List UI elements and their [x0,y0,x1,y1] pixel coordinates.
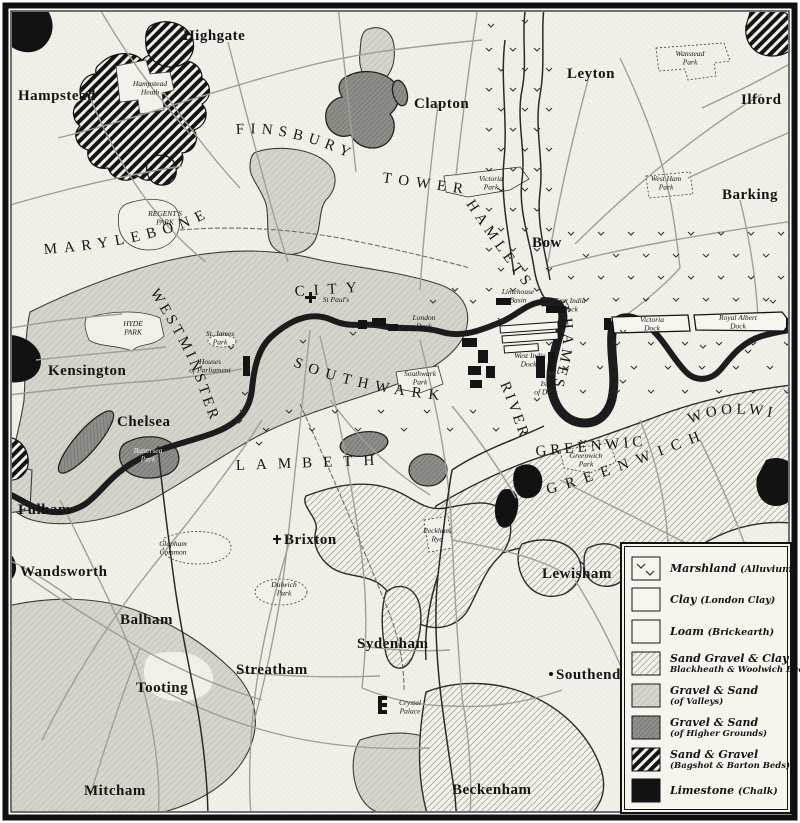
legend-swatch-clay [631,587,661,612]
map-page: MARYLEBONEFINSBURYTOWERHAMLETSWESTMINSTE… [0,0,800,823]
svg-text:PARK: PARK [123,328,143,337]
label-town-fulham: Fulham [18,502,71,518]
legend-label: Gravel & Sand (of Higher Grounds) [670,716,767,739]
svg-text:Heath: Heath [140,88,160,97]
svg-text:Park: Park [483,183,499,192]
legend-item-limestone: Limestone (Chalk) [631,777,783,805]
svg-text:Common: Common [159,548,186,557]
legend-swatch-marsh [631,556,661,581]
svg-text:Dock: Dock [729,322,746,331]
legend-rows: Marshland (Alluvium)Clay (London Clay)Lo… [624,546,788,810]
svg-text:Palace: Palace [399,707,421,716]
label-town-wandsworth: Wandsworth [20,564,108,580]
label-town-hampstead: Hampstead [18,88,96,104]
label-town-barking: Barking [722,187,778,203]
label-town-highgate: Highgate [183,28,245,44]
label-town-sydenham: Sydenham [357,636,429,652]
svg-text:Park: Park [658,183,674,192]
legend-label: Clay (London Clay) [670,593,775,606]
label-place-st-paul-s: St Paul's [323,295,349,304]
svg-text:of Parliament: of Parliament [189,366,231,375]
label-town-balham: Balham [120,612,173,628]
legend-label: Marshland (Alluvium) [670,562,797,575]
legend-item-gravel-sand: Gravel & Sand (of Valleys) [631,681,783,709]
legend-item-clay: Clay (London Clay) [631,586,783,614]
legend-item-sand-gravel-clay: Sand Gravel & Clay Blackheath & Woolwich… [631,650,783,678]
legend-item-sand-gravel: Sand & Gravel (Bagshot & Barton Beds) [631,745,783,773]
svg-text:Rye: Rye [430,535,443,544]
legend-item-gravel-sand: Gravel & Sand (of Higher Grounds) [631,713,783,741]
legend-label: Gravel & Sand (of Valleys) [670,684,758,707]
label-town-beckenham: Beckenham [452,782,532,798]
legend-swatch-gravel-higher [631,715,661,740]
label-town-tooting: Tooting [136,680,188,696]
svg-text:Park: Park [412,378,428,387]
legend-label: Sand & Gravel (Bagshot & Barton Beds) [670,748,790,771]
svg-text:Docks: Docks [520,360,540,369]
label-town-kensington: Kensington [48,363,127,379]
svg-text:Park: Park [682,58,698,67]
legend-item-loam: Loam (Brickearth) [631,618,783,646]
label-town-lewisham: Lewisham [542,566,612,582]
svg-text:Park: Park [578,460,594,469]
label-town-streatham: Streatham [236,662,308,678]
legend-swatch-hatch-dark [631,747,661,772]
legend-label: Sand Gravel & Clay Blackheath & Woolwich… [670,652,800,675]
legend-swatch-loam [631,619,661,644]
crystal-palace-icon [378,696,387,714]
legend-item-marshland: Marshland (Alluvium) [631,554,783,582]
map-legend: Marshland (Alluvium)Clay (London Clay)Lo… [620,542,792,814]
legend-label: Loam (Brickearth) [670,625,774,638]
svg-text:Park: Park [140,455,156,464]
legend-swatch-hatch-light [631,651,661,676]
svg-text:Park: Park [212,338,228,347]
label-town-mitcham: Mitcham [84,783,146,799]
legend-label: Limestone (Chalk) [670,784,778,797]
label-town-chelsea: Chelsea [117,414,171,430]
legend-swatch-black [631,778,661,803]
label-town-southend: Southend [556,667,621,683]
label-town-clapton: Clapton [414,96,469,112]
label-town-brixton: Brixton [284,532,337,548]
svg-text:Dock: Dock [415,322,432,331]
svg-text:Park: Park [276,589,292,598]
label-town-leyton: Leyton [567,66,615,82]
svg-text:Dock: Dock [561,305,578,314]
svg-text:Basin: Basin [509,296,526,305]
svg-text:of Dogs: of Dogs [534,388,558,397]
legend-swatch-gravel-valleys [631,683,661,708]
label-town-ilford: Ilford [741,92,782,108]
label-town-bow: Bow [532,235,562,251]
svg-text:Dock: Dock [643,324,660,333]
svg-text:PARK: PARK [155,218,175,227]
